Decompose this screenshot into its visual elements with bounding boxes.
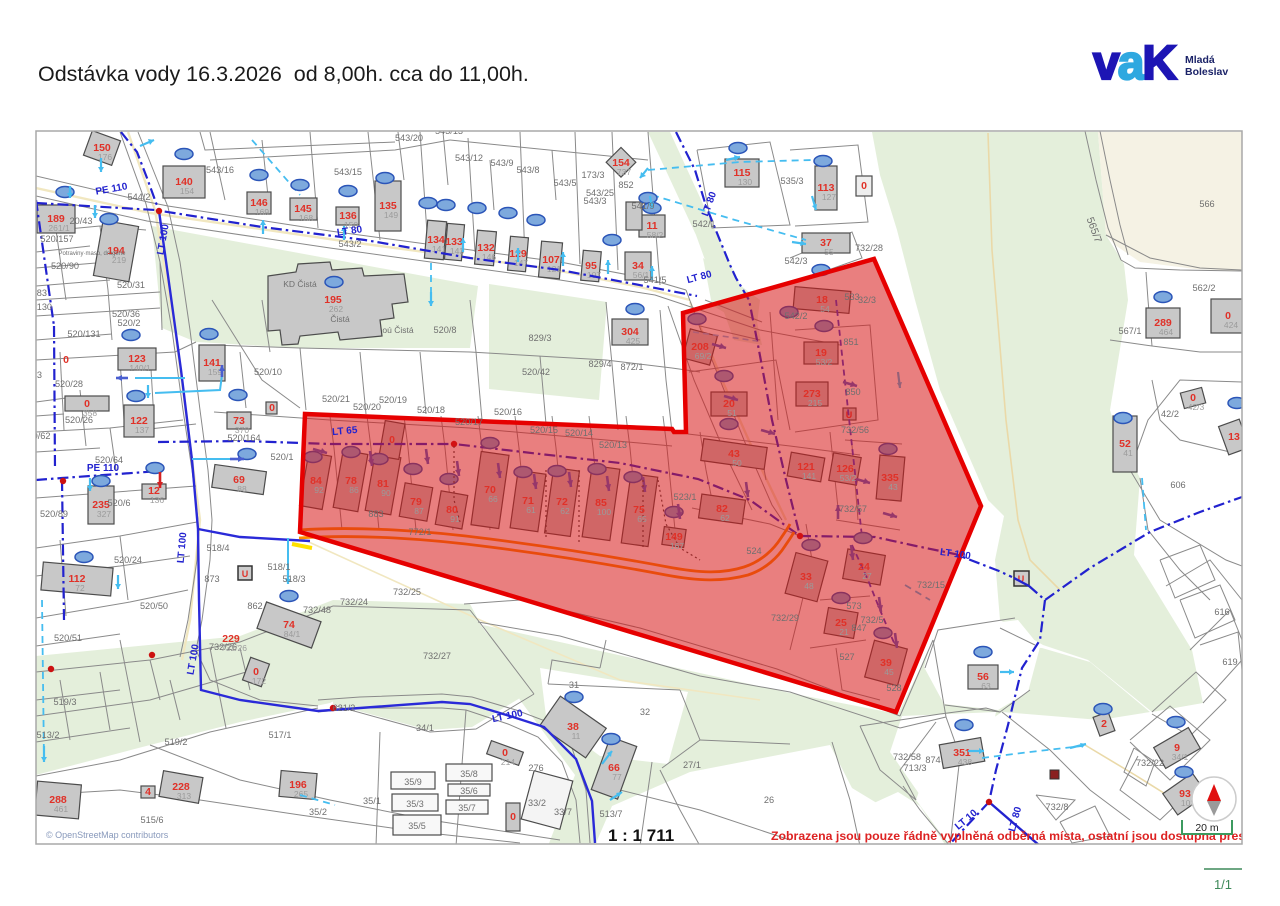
svg-text:520/20: 520/20: [353, 402, 381, 412]
svg-text:520/15: 520/15: [530, 425, 558, 435]
svg-text:53/2: 53/2: [816, 357, 833, 367]
svg-text:874: 874: [925, 755, 940, 765]
svg-text:35/7: 35/7: [458, 803, 476, 813]
svg-text:173/3: 173/3: [582, 170, 605, 180]
svg-text:519/2: 519/2: [165, 737, 188, 747]
svg-text:424: 424: [1224, 320, 1238, 330]
svg-text:72: 72: [75, 583, 85, 593]
svg-text:732/48: 732/48: [303, 605, 331, 615]
svg-text:32/3: 32/3: [858, 295, 876, 305]
svg-text:852: 852: [618, 180, 633, 190]
svg-text:520/26: 520/26: [65, 415, 93, 425]
svg-text:732/24: 732/24: [340, 597, 368, 607]
svg-text:732/22: 732/22: [1136, 758, 1164, 768]
svg-text:567/1: 567/1: [1119, 326, 1142, 336]
svg-text:732/58: 732/58: [893, 752, 921, 762]
svg-text:520/1: 520/1: [271, 452, 294, 462]
svg-text:520/31: 520/31: [117, 280, 145, 290]
svg-text:87: 87: [414, 506, 424, 516]
svg-text:732/8: 732/8: [1046, 802, 1069, 812]
svg-text:523/1: 523/1: [674, 492, 697, 502]
svg-text:214: 214: [501, 757, 515, 767]
svg-text:Potraviny·maso, drogerie: Potraviny·maso, drogerie: [58, 251, 126, 257]
svg-text:33/2: 33/2: [528, 798, 546, 808]
svg-text:136: 136: [150, 495, 164, 505]
svg-text:33/7: 33/7: [554, 807, 572, 817]
svg-text:535/3: 535/3: [781, 176, 804, 186]
svg-text:543/16: 543/16: [206, 165, 234, 175]
svg-text:41: 41: [1123, 448, 1133, 458]
svg-text:464: 464: [1159, 327, 1173, 337]
svg-text:27/1: 27/1: [683, 760, 701, 770]
svg-text:513/2: 513/2: [37, 730, 60, 740]
svg-text:566: 566: [1199, 199, 1214, 209]
svg-text:862: 862: [247, 601, 262, 611]
svg-text:0/63: 0/63: [24, 370, 42, 380]
svg-text:45: 45: [884, 667, 894, 677]
svg-text:Čistá: Čistá: [330, 314, 350, 324]
svg-text:1/1: 1/1: [1214, 877, 1232, 892]
svg-text:169: 169: [255, 207, 269, 217]
svg-text:829/4: 829/4: [589, 359, 612, 369]
svg-text:606: 606: [1170, 480, 1185, 490]
svg-text:20/130: 20/130: [24, 302, 52, 312]
svg-text:141: 141: [802, 471, 816, 481]
svg-text:872/1: 872/1: [621, 362, 644, 372]
svg-text:50: 50: [732, 458, 742, 468]
svg-text:520/89: 520/89: [40, 509, 68, 519]
svg-text:520/6: 520/6: [108, 498, 131, 508]
svg-text:327: 327: [97, 509, 111, 519]
svg-text:520/24: 520/24: [114, 555, 142, 565]
svg-text:20/62: 20/62: [28, 431, 51, 441]
svg-text:461: 461: [54, 804, 68, 814]
svg-text:35/3: 35/3: [406, 799, 424, 809]
svg-text:26: 26: [764, 795, 774, 805]
svg-text:149: 149: [384, 210, 398, 220]
svg-text:34/1: 34/1: [1172, 752, 1189, 762]
svg-text:520/10: 520/10: [254, 367, 282, 377]
svg-text:4: 4: [145, 786, 151, 798]
svg-text:42/2: 42/2: [1161, 409, 1179, 419]
svg-text:62: 62: [560, 506, 570, 516]
svg-text:519/3: 519/3: [54, 697, 77, 707]
svg-text:619: 619: [1222, 657, 1237, 667]
svg-text:51: 51: [727, 408, 737, 418]
svg-text:35/8: 35/8: [460, 769, 478, 779]
svg-text:544/2: 544/2: [128, 192, 151, 202]
svg-text:562/2: 562/2: [1193, 283, 1216, 293]
svg-text:732/57: 732/57: [839, 504, 867, 514]
svg-text:542/3: 542/3: [785, 256, 808, 266]
svg-text:© OpenStreetMap contributors: © OpenStreetMap contributors: [46, 830, 169, 840]
svg-text:55: 55: [824, 247, 834, 257]
svg-text:513/7: 513/7: [600, 809, 623, 819]
svg-text:oú Čistá: oú Čistá: [382, 325, 413, 335]
svg-text:32: 32: [640, 707, 650, 717]
svg-text:140/1: 140/1: [129, 363, 151, 373]
svg-text:772/1: 772/1: [409, 527, 432, 537]
svg-text:616: 616: [1214, 607, 1229, 617]
svg-text:86: 86: [349, 485, 359, 495]
svg-text:262: 262: [329, 304, 343, 314]
svg-text:91: 91: [450, 514, 460, 524]
svg-text:167: 167: [670, 541, 684, 551]
svg-text:732/29: 732/29: [771, 613, 799, 623]
svg-text:215: 215: [808, 398, 822, 408]
svg-text:65: 65: [637, 514, 647, 524]
svg-text:543/3: 543/3: [584, 196, 607, 206]
svg-text:732/5: 732/5: [861, 615, 884, 625]
svg-text:172: 172: [252, 676, 266, 686]
svg-text:541/9: 541/9: [632, 201, 655, 211]
svg-text:0: 0: [63, 354, 69, 366]
svg-text:276: 276: [528, 763, 543, 773]
svg-text:543/5: 543/5: [554, 178, 577, 188]
svg-text:425: 425: [626, 336, 640, 346]
svg-text:35/2: 35/2: [309, 807, 327, 817]
svg-text:90: 90: [381, 488, 391, 498]
svg-text:/183: /183: [29, 288, 47, 298]
svg-text:573: 573: [846, 601, 861, 611]
svg-text:61: 61: [526, 505, 536, 515]
svg-text:851: 851: [843, 337, 858, 347]
svg-text:520/17: 520/17: [455, 417, 483, 427]
svg-text:732/56: 732/56: [841, 425, 869, 435]
svg-text:737: 737: [617, 167, 631, 177]
svg-text:528: 528: [886, 683, 901, 693]
svg-text:42/3: 42/3: [1188, 402, 1205, 412]
svg-text:543/2: 543/2: [339, 239, 362, 249]
svg-text:92: 92: [314, 485, 324, 495]
svg-text:43: 43: [888, 482, 898, 492]
svg-text:520/8: 520/8: [434, 325, 457, 335]
svg-text:520/13: 520/13: [599, 440, 627, 450]
svg-text:543/20: 543/20: [395, 133, 423, 143]
svg-text:520/90: 520/90: [51, 261, 79, 271]
svg-text:527: 527: [839, 652, 854, 662]
svg-text:732/26: 732/26: [221, 643, 247, 653]
svg-text:34/1: 34/1: [416, 723, 434, 733]
svg-text:88: 88: [237, 484, 247, 494]
svg-text:130: 130: [738, 177, 752, 187]
svg-text:543/9: 543/9: [491, 158, 514, 168]
svg-text:313: 313: [177, 791, 191, 801]
svg-text:520/21: 520/21: [322, 394, 350, 404]
svg-text:27: 27: [862, 571, 872, 581]
svg-text:2: 2: [1101, 718, 1107, 730]
svg-text:PE 110: PE 110: [87, 463, 120, 474]
svg-text:524: 524: [746, 546, 761, 556]
svg-text:63: 63: [981, 681, 991, 691]
svg-text:543/15: 543/15: [334, 167, 362, 177]
svg-text:543/12: 543/12: [455, 153, 483, 163]
svg-text:21: 21: [839, 627, 849, 637]
svg-text:515/6: 515/6: [141, 815, 164, 825]
svg-text:69/2: 69/2: [695, 351, 712, 361]
svg-text:732/27: 732/27: [423, 651, 451, 661]
svg-text:517/1: 517/1: [269, 730, 292, 740]
svg-text:20 m: 20 m: [1195, 822, 1219, 834]
svg-text:84/1: 84/1: [284, 629, 301, 639]
svg-text:873: 873: [204, 574, 219, 584]
svg-text:520/131: 520/131: [67, 329, 100, 339]
svg-text:20/43: 20/43: [70, 216, 93, 226]
svg-text:35/5: 35/5: [408, 821, 426, 831]
svg-text:127: 127: [822, 192, 836, 202]
svg-text:518/3: 518/3: [283, 574, 306, 584]
svg-text:542/2: 542/2: [785, 311, 808, 321]
svg-text:732/25: 732/25: [393, 587, 421, 597]
svg-text:518/1: 518/1: [268, 562, 291, 572]
svg-text:154: 154: [180, 186, 194, 196]
svg-text:54: 54: [820, 304, 830, 314]
svg-text:520/164: 520/164: [227, 433, 260, 443]
svg-text:438: 438: [958, 757, 972, 767]
svg-text:53/2: 53/2: [840, 473, 857, 483]
svg-text:543/8: 543/8: [517, 165, 540, 175]
svg-text:520/42: 520/42: [522, 367, 550, 377]
svg-text:11: 11: [572, 731, 581, 741]
svg-text:0: 0: [389, 434, 395, 446]
svg-text:520/157: 520/157: [40, 234, 73, 244]
svg-text:518/4: 518/4: [207, 543, 230, 553]
svg-text:66: 66: [488, 494, 498, 504]
svg-text:829/3: 829/3: [529, 333, 552, 343]
svg-text:48: 48: [804, 581, 814, 591]
svg-text:520/14: 520/14: [565, 428, 593, 438]
svg-text:542/1: 542/1: [693, 219, 716, 229]
svg-text:520/50: 520/50: [140, 601, 168, 611]
svg-text:LT 65: LT 65: [332, 425, 359, 438]
svg-text:713/3: 713/3: [904, 763, 927, 773]
svg-text:520/51: 520/51: [54, 633, 82, 643]
svg-text:U: U: [242, 569, 249, 579]
svg-text:KD Čistá: KD Čistá: [283, 279, 317, 289]
svg-text:0: 0: [510, 811, 516, 823]
svg-text:261/1: 261/1: [48, 223, 70, 233]
svg-text:13: 13: [1228, 431, 1240, 443]
svg-text:520/16: 520/16: [494, 407, 522, 417]
svg-text:850: 850: [845, 387, 860, 397]
svg-text:1 : 1 711: 1 : 1 711: [608, 826, 674, 845]
svg-text:520/2: 520/2: [118, 318, 141, 328]
svg-text:62: 62: [720, 513, 730, 523]
svg-text:31: 31: [569, 680, 579, 690]
svg-text:520/28: 520/28: [55, 379, 83, 389]
svg-text:159: 159: [208, 367, 222, 377]
svg-text:732/28: 732/28: [855, 243, 883, 253]
svg-text:732/15: 732/15: [917, 580, 945, 590]
svg-text:77: 77: [612, 772, 622, 782]
svg-text:883: 883: [368, 509, 383, 519]
svg-text:520/19: 520/19: [379, 395, 407, 405]
svg-text:520/18: 520/18: [417, 405, 445, 415]
svg-text:0: 0: [861, 180, 867, 192]
svg-text:0: 0: [269, 402, 275, 414]
svg-text:137: 137: [135, 425, 149, 435]
svg-text:100: 100: [597, 507, 611, 517]
svg-text:35/6: 35/6: [460, 786, 478, 796]
svg-text:58/2: 58/2: [647, 230, 664, 240]
svg-text:621/2: 621/2: [333, 703, 356, 713]
svg-text:541/5: 541/5: [644, 275, 667, 285]
svg-text:35/1: 35/1: [363, 796, 381, 806]
svg-text:35/9: 35/9: [404, 777, 422, 787]
svg-text:168: 168: [299, 213, 313, 223]
